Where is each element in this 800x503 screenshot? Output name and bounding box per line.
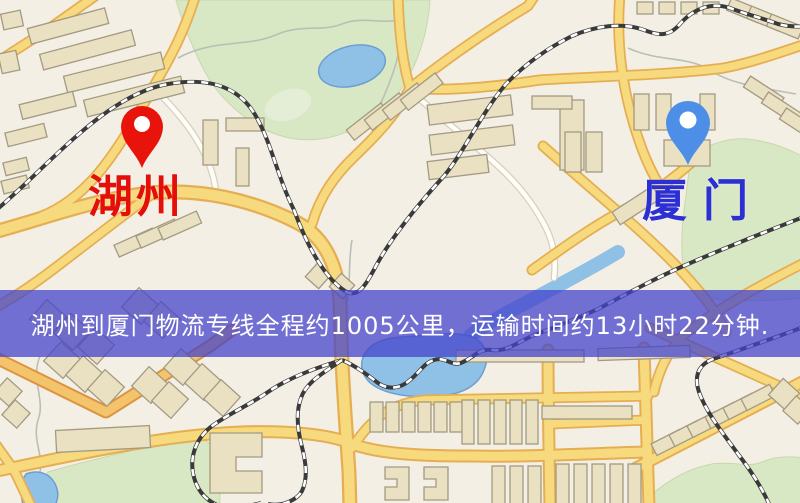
route-banner: 湖州到厦门物流专线全程约1005公里，运输时间约13小时22分钟. bbox=[0, 290, 800, 357]
huzhou-pin-hole bbox=[134, 116, 150, 132]
xiamen-pin-hole bbox=[680, 112, 697, 129]
map-canvas[interactable] bbox=[0, 0, 800, 503]
xiamen-label: 厦门 bbox=[642, 178, 764, 223]
map-screenshot: 湖州 厦门 湖州到厦门物流专线全程约1005公里，运输时间约13小时22分钟. bbox=[0, 0, 800, 503]
huzhou-label: 湖州 bbox=[88, 174, 184, 219]
route-banner-text: 湖州到厦门物流专线全程约1005公里，运输时间约13小时22分钟. bbox=[31, 306, 770, 341]
